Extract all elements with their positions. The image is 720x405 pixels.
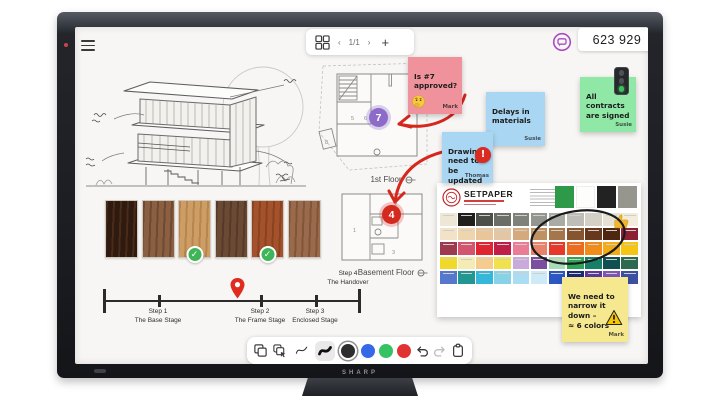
- palette-swatch: [531, 242, 548, 255]
- palette-swatch: [567, 213, 584, 226]
- warning-icon: [605, 300, 623, 329]
- palette-swatch: [513, 242, 530, 255]
- prev-page-button[interactable]: ‹: [338, 38, 341, 47]
- marker-7[interactable]: 7: [369, 108, 388, 127]
- timeline-step-1: Step 1The Base Stage: [120, 308, 196, 326]
- palette-swatch: [621, 242, 638, 255]
- clipboard-button[interactable]: [451, 343, 465, 358]
- sticky-note-approved[interactable]: Is #7 approved? Mark: [408, 57, 462, 114]
- power-led: [64, 43, 68, 47]
- palette-swatch: [531, 257, 548, 270]
- palette-swatch: [458, 271, 475, 284]
- wood-swatch[interactable]: [215, 200, 248, 258]
- room-number: 5: [351, 116, 354, 122]
- palette-swatch: [603, 242, 620, 255]
- wood-swatch-row: ✓✓: [105, 200, 321, 258]
- palette-swatch: [494, 257, 511, 270]
- monitor-stand: [302, 378, 418, 396]
- approved-check-icon: ✓: [186, 246, 203, 263]
- sticky-note-contracts[interactable]: All contracts are signed Susie: [580, 77, 636, 132]
- palette-swatch: [549, 228, 566, 241]
- wood-swatch[interactable]: [105, 200, 138, 258]
- palette-swatch: [476, 271, 493, 284]
- color-green-button[interactable]: [379, 344, 393, 358]
- palette-header-swatch: [618, 186, 637, 208]
- palette-swatch: [567, 242, 584, 255]
- palette-swatch: [549, 242, 566, 255]
- palette-swatch: [567, 257, 584, 270]
- palette-rows: [440, 213, 638, 284]
- monitor-bezel: SHARP ‹ 1/1 › + 623 929: [57, 12, 663, 378]
- section-marker-icon: [417, 269, 428, 277]
- palette-swatch: [513, 213, 530, 226]
- traffic-light-icon: [614, 67, 629, 95]
- pages-grid-icon[interactable]: [315, 35, 330, 50]
- first-floor-label: 1st Floor: [353, 175, 433, 184]
- palette-swatch: [494, 271, 511, 284]
- timeline-line: [103, 300, 361, 302]
- palette-swatch: [585, 228, 602, 241]
- toolbar-colors: [339, 342, 411, 360]
- room-number: 1: [353, 228, 356, 234]
- color-blue-button[interactable]: [361, 344, 375, 358]
- alert-icon: !: [475, 147, 491, 163]
- palette-header-swatches: [555, 186, 637, 208]
- wood-swatch[interactable]: [288, 200, 321, 258]
- redo-button[interactable]: [433, 344, 447, 358]
- palette-header-swatch: [576, 186, 595, 208]
- palette-swatch: [494, 242, 511, 255]
- palette-swatch: [567, 228, 584, 241]
- drawing-toolbar[interactable]: [247, 337, 472, 364]
- palette-swatch: [440, 242, 457, 255]
- palette-swatch: [585, 213, 602, 226]
- palette-swatch: [440, 257, 457, 270]
- pen-thin-button[interactable]: [291, 341, 311, 361]
- color-black-button[interactable]: [339, 342, 357, 360]
- timeline-step-3: Step 3Enclosed Stage: [277, 308, 353, 326]
- palette-swatch: [458, 242, 475, 255]
- menu-button[interactable]: [81, 40, 95, 51]
- copy-button[interactable]: [253, 343, 268, 358]
- wood-swatch[interactable]: ✓: [178, 200, 211, 258]
- palette-swatch: [458, 228, 475, 241]
- undo-button[interactable]: [415, 344, 429, 358]
- basement-floor-plan[interactable]: 1 2 3: [338, 190, 426, 266]
- palette-swatch: [440, 271, 457, 284]
- brand-logo: SHARP: [57, 370, 663, 376]
- palette-swatch: [531, 228, 548, 241]
- palette-swatch: [531, 213, 548, 226]
- add-page-button[interactable]: +: [381, 35, 389, 50]
- palette-swatch: [494, 213, 511, 226]
- palette-swatch: [458, 213, 475, 226]
- palette-header-swatch: [597, 186, 616, 208]
- palette-swatch: [476, 228, 493, 241]
- section-marker-icon: [405, 176, 416, 184]
- palette-swatch: [531, 271, 548, 284]
- sticky-note-delays[interactable]: Delays in materials Susie: [486, 92, 545, 146]
- wood-swatch[interactable]: [142, 200, 175, 258]
- page-indicator: 1/1: [349, 38, 360, 47]
- palette-swatch: [513, 257, 530, 270]
- sticky-note-drawings[interactable]: Drawings need to be updated Thomas !: [442, 132, 493, 183]
- palette-swatch: [476, 242, 493, 255]
- palette-swatch: [513, 271, 530, 284]
- location-pin-icon[interactable]: [230, 278, 245, 299]
- palette-swatch: [621, 257, 638, 270]
- palette-swatch: [549, 213, 566, 226]
- palette-title: SETPAPER: [464, 189, 513, 199]
- duplicate-button[interactable]: [272, 343, 287, 358]
- whiteboard-canvas[interactable]: ‹ 1/1 › + 623 929: [75, 27, 648, 364]
- palette-swatch: [585, 257, 602, 270]
- sticky-note-colors[interactable]: We need to narrow it down – ≈ 6 colors M…: [562, 277, 628, 342]
- page-navigator[interactable]: ‹ 1/1 › +: [306, 29, 414, 55]
- stamp-logo-icon: [442, 188, 461, 207]
- participant-counter: 623 929: [578, 28, 648, 51]
- palette-header-swatch: [555, 186, 574, 208]
- palette-swatch: [458, 257, 475, 270]
- house-sketch[interactable]: [80, 55, 310, 205]
- room-number: 8: [325, 140, 328, 146]
- marker-4[interactable]: 4: [382, 205, 401, 224]
- thinking-emoji: [412, 86, 425, 111]
- palette-swatch: [603, 257, 620, 270]
- palette-swatch: [549, 257, 566, 270]
- chat-bubble-icon[interactable]: [552, 32, 572, 52]
- project-timeline[interactable]: Step 1The Base Stage Step 2The Frame Sta…: [100, 270, 368, 340]
- color-red-button[interactable]: [397, 344, 411, 358]
- palette-swatch: [494, 228, 511, 241]
- approved-check-icon: ✓: [259, 246, 276, 263]
- palette-swatch: [476, 257, 493, 270]
- next-page-button[interactable]: ›: [368, 38, 371, 47]
- room-number: 3: [392, 250, 395, 256]
- page: { "device": { "brand": "SHARP" }, "topba…: [0, 0, 720, 405]
- room-number: 6: [364, 116, 367, 122]
- palette-swatch: [440, 228, 457, 241]
- timeline-step-4: Step 4The Handover: [310, 270, 386, 288]
- palette-swatch: [476, 213, 493, 226]
- thumbs-up-icon: [612, 211, 631, 235]
- wood-swatch[interactable]: ✓: [251, 200, 284, 258]
- pen-bold-button[interactable]: [315, 341, 335, 361]
- palette-swatch: [585, 242, 602, 255]
- palette-swatch: [513, 228, 530, 241]
- palette-swatch: [440, 213, 457, 226]
